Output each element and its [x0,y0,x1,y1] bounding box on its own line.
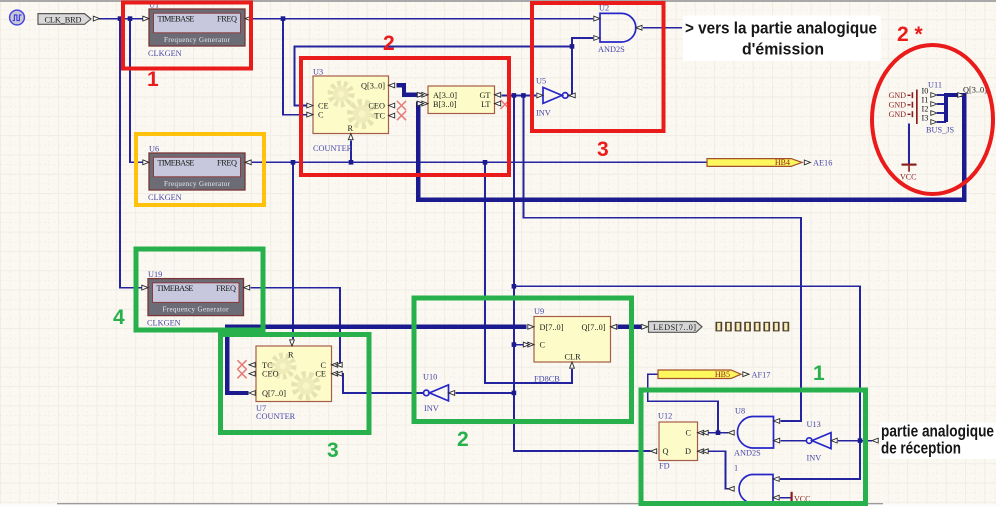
svg-text:TIMEBASE: TIMEBASE [158,159,195,168]
svg-text:BUS_JS: BUS_JS [926,126,955,135]
svg-text:U6: U6 [149,145,159,154]
svg-text:AF17: AF17 [752,370,771,379]
svg-text:A[3..0]: A[3..0] [433,91,457,100]
svg-text:COUNTER: COUNTER [256,412,296,421]
svg-text:U8: U8 [735,407,745,416]
svg-text:FREQ: FREQ [217,159,237,168]
svg-text:> vers la partie analogique: > vers la partie analogique [685,19,877,38]
svg-text:INV: INV [536,108,551,117]
svg-text:U10: U10 [423,373,437,382]
svg-text:CLKGEN: CLKGEN [148,193,182,202]
svg-text:Q[7..0]: Q[7..0] [262,389,286,398]
svg-text:2: 2 [457,428,469,451]
svg-text:B[3..0]: B[3..0] [433,100,457,109]
svg-text:CLR: CLR [565,353,582,362]
svg-text:CEO: CEO [368,101,385,110]
svg-text:1: 1 [813,362,825,385]
svg-text:2 *: 2 * [897,23,924,46]
svg-text:HB4: HB4 [775,158,790,167]
svg-text:C: C [318,111,324,120]
svg-text:GND: GND [889,110,907,119]
svg-text:4: 4 [113,306,125,329]
svg-text:TIMEBASE: TIMEBASE [157,284,194,293]
svg-text:I1: I1 [922,95,929,104]
svg-text:HB5: HB5 [715,370,730,379]
svg-text:3: 3 [327,439,339,462]
svg-text:U13: U13 [807,420,821,429]
svg-text:Frequency Generator: Frequency Generator [164,36,231,44]
svg-text:COUNTER: COUNTER [313,144,353,153]
svg-text:U19: U19 [148,270,162,279]
svg-text:TC: TC [262,361,273,370]
svg-text:de réception: de réception [881,439,961,458]
svg-text:R: R [348,124,354,133]
svg-text:I3: I3 [922,113,929,122]
svg-text:U5: U5 [536,77,546,86]
svg-text:TC: TC [374,112,385,121]
svg-text:CE: CE [315,370,326,379]
svg-text:2: 2 [383,32,395,55]
svg-text:Q: Q [663,447,669,456]
svg-text:C: C [540,341,546,350]
svg-text:Frequency Generator: Frequency Generator [164,180,231,188]
svg-text:D: D [685,447,691,456]
svg-text:AND2S: AND2S [598,45,625,54]
svg-text:GND: GND [889,101,907,110]
svg-text:C: C [320,361,326,370]
svg-text:Q[3..0]: Q[3..0] [361,81,385,90]
svg-text:CE: CE [318,101,329,110]
svg-text:I0: I0 [922,86,929,95]
svg-text:1: 1 [734,464,738,473]
svg-text:FREQ: FREQ [216,284,236,293]
svg-text:TIMEBASE: TIMEBASE [158,15,195,24]
svg-text:d'émission: d'émission [742,40,824,59]
svg-text:3: 3 [597,138,609,161]
svg-text:U11: U11 [928,81,942,90]
svg-text:FREQ: FREQ [217,15,237,24]
svg-text:GND: GND [889,91,907,100]
svg-text:LT: LT [481,100,490,109]
svg-text:VCC: VCC [900,173,916,182]
svg-text:D[7..0]: D[7..0] [540,323,564,332]
svg-text:Q[3..0]: Q[3..0] [963,86,987,95]
svg-text:CLK_BRD: CLK_BRD [45,15,82,24]
svg-text:1: 1 [147,68,159,91]
svg-text:FD: FD [659,462,670,471]
svg-text:Q[7..0]: Q[7..0] [582,323,606,332]
svg-text:U12: U12 [658,412,672,421]
svg-text:U3: U3 [313,68,323,77]
svg-text:R: R [288,350,294,359]
svg-text:LEDS[7..0]: LEDS[7..0] [653,323,696,332]
svg-text:FD8CB: FD8CB [534,375,560,384]
svg-text:C: C [685,429,691,438]
svg-text:AND2S: AND2S [734,449,761,458]
svg-text:U9: U9 [534,307,544,316]
svg-text:CLKGEN: CLKGEN [148,49,182,58]
svg-text:AE16: AE16 [813,159,832,168]
svg-text:I2: I2 [922,104,929,113]
svg-text:Frequency Generator: Frequency Generator [163,306,230,314]
svg-text:INV: INV [424,404,439,413]
svg-text:CLKGEN: CLKGEN [147,319,181,328]
svg-text:INV: INV [807,453,822,462]
svg-text:GT: GT [479,91,490,100]
svg-text:CEO: CEO [262,370,279,379]
